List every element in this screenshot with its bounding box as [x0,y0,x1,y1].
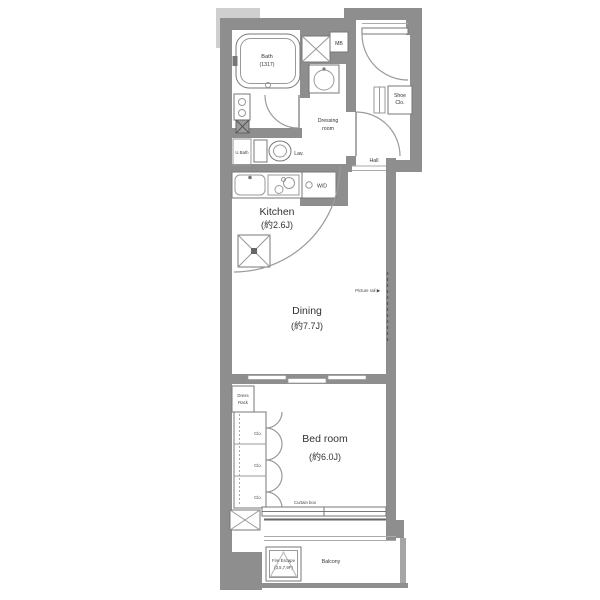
closet-label-2: Clo. [254,463,262,468]
bath-faucet-icon [233,56,238,66]
closet-door-arc-1a [266,412,282,428]
closet-label-1: Clo. [254,431,262,436]
partition-panel-1 [248,376,286,380]
hall-label: Hall [370,158,379,164]
partition-panel-3 [328,376,366,380]
unit-bath-label: U.Bath [235,150,249,155]
entrance-door-leaf [362,28,408,34]
kitchen-counter [232,172,302,198]
dressing-door-arc [356,112,400,156]
washer-dryer-label: W/D [317,184,327,190]
wash-basin-tap [322,67,325,70]
bedroom-size-label: (約6.0J) [309,451,341,462]
closet-door-arc-2a [266,444,282,460]
bath-label: Bath [261,54,273,60]
closet-door-arc-1b [266,428,282,444]
dining-room: Dining (約7.7J) Picture rail ▶ [291,272,388,344]
toilet-bowl [269,141,291,161]
dressing-room: Dressing room [309,65,339,132]
meter-box-label: MB [335,41,343,47]
wall-bath-toilet [220,128,302,138]
closet-door-arc-3a [266,476,282,492]
balcony-rail-right [400,538,406,588]
wall-balcony-right-chunk [386,520,404,538]
dining-label: Dining [292,305,322,317]
balcony-label: Balcony [322,559,341,565]
bath-size-label: (1317) [260,62,275,68]
dressing-room-label-line2: room [322,126,334,132]
closet-door-arc-2b [266,460,282,476]
toilet-area: U.Bath Lav. [233,139,304,165]
floor-plan: Shoe Clo. Hall MB Bath (1317) D [0,0,600,600]
wall-left [220,18,232,590]
wall-top-right-band [344,8,422,20]
wall-right-main [386,158,396,540]
bath-door-arc [265,95,298,128]
closet-door-arc-3b [266,492,282,508]
kitchen-faucet [248,176,252,180]
refrigerator-center-mark [251,248,257,254]
kitchen-label: Kitchen [259,206,294,218]
dress-rack-label-line1: Dress [237,393,248,398]
closet [234,412,266,508]
fire-escape-label-line2: (3,5,7,9F) [274,565,293,570]
closet-label-3: Clo. [254,495,262,500]
shoe-closet-label-line1: Shoe [394,93,406,99]
dressing-room-label-line1: Dressing [318,118,339,124]
balcony: Fire Escape (3,5,7,9F) Balcony [264,537,396,582]
dining-size-label: (約7.7J) [291,320,323,331]
lavatory-label: Lav. [294,151,303,157]
bedroom: Dress Rack Clo. Clo. Clo. Bed room (約6.0… [230,386,386,530]
curtain-box-label: Curtain box [294,500,317,505]
kitchen: W/D Kitchen (約2.6J) [232,166,340,272]
balcony-rail-bottom [262,583,408,588]
bath-room: Bath (1317) [233,34,301,133]
toilet-tank [254,140,267,162]
dress-rack-label-line2: Rack [238,400,249,405]
wall-outer-top-left [216,8,260,18]
entrance-door-arc [362,34,408,80]
partition-panel-2 [288,379,326,384]
wall-wd-bottom [300,198,348,206]
bathtub-outer [236,34,300,88]
picture-rail-label: Picture rail ▶ [355,288,380,293]
bedroom-label: Bed room [302,433,348,445]
wall-bottom-left-block [232,552,262,590]
shoe-closet-label-line2: Clo. [395,100,404,106]
dress-rack-box [232,386,254,412]
fire-escape-label-line1: Fire Escape [272,558,296,563]
entrance-area: Shoe Clo. Hall [352,24,412,171]
kitchen-size-label: (約2.6J) [261,219,293,230]
